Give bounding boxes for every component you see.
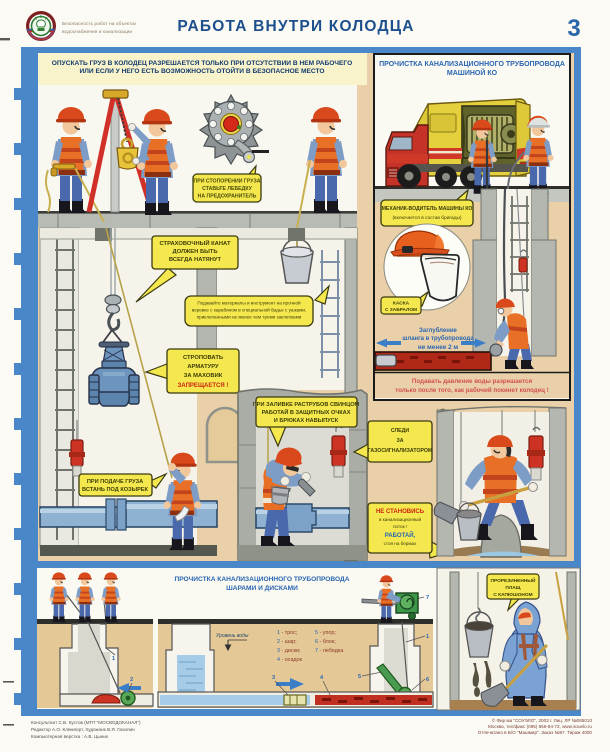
svg-text:1: 1 xyxy=(112,656,115,662)
svg-text:С ЗАБРАЛОМ: С ЗАБРАЛОМ xyxy=(385,307,417,313)
svg-text:АРМАТУРУ: АРМАТУРУ xyxy=(187,364,219,370)
svg-text:ПРОЧИСТКА КАНАЛИЗАЦИОННОГО ТРУ: ПРОЧИСТКА КАНАЛИЗАЦИОННОГО ТРУБОПРОВОДА xyxy=(175,576,350,583)
svg-text:Отпечатано в Б/О "Машмир". Зак: Отпечатано в Б/О "Машмир". Заказ №97. Ти… xyxy=(478,730,593,735)
svg-text:только после того, как рабочий: только после того, как рабочий покинет к… xyxy=(395,387,549,394)
svg-text:ЗА МАХОВИК: ЗА МАХОВИК xyxy=(184,373,223,379)
svg-text:СТРАХОВОЧНЫЙ КАНАТ: СТРАХОВОЧНЫЙ КАНАТ xyxy=(160,239,231,247)
svg-text:РАБОТАЙ,: РАБОТАЙ, xyxy=(385,531,416,539)
svg-text:ПРОЧИСТКА КАНАЛИЗАЦИОННОГО ТРУ: ПРОЧИСТКА КАНАЛИЗАЦИОННОГО ТРУБОПРОВОДА xyxy=(379,61,565,68)
svg-text:ВСТАНЬ ПОД КОЗЫРЕК: ВСТАНЬ ПОД КОЗЫРЕК xyxy=(82,487,148,493)
svg-text:5: 5 xyxy=(358,674,361,680)
svg-text:7 - лебедка: 7 - лебедка xyxy=(315,648,343,654)
svg-text:Консультант С.В. Кустов (МГП ": Консультант С.В. Кустов (МГП "МОСВОДОКАН… xyxy=(31,720,141,725)
svg-text:НА ПРЕДОХРАНИТЕЛЬ: НА ПРЕДОХРАНИТЕЛЬ xyxy=(198,194,257,200)
svg-text:1: 1 xyxy=(426,634,429,640)
svg-text:ПРИ ЗАЛИВКЕ РАСТРУБОВ СВИНЦОМ: ПРИ ЗАЛИВКЕ РАСТРУБОВ СВИНЦОМ xyxy=(253,402,360,408)
svg-text:ПЛАЩ: ПЛАЩ xyxy=(505,585,520,591)
svg-text:водоснабжения и канализации: водоснабжения и канализации xyxy=(62,29,132,35)
svg-text:3: 3 xyxy=(272,675,275,681)
svg-text:Редактор А.О. Клемперт, Художн: Редактор А.О. Клемперт, Художник В.Я. Га… xyxy=(31,727,135,732)
svg-text:СТРОПОВАТЬ: СТРОПОВАТЬ xyxy=(183,355,223,361)
svg-text:СЛЕДИ: СЛЕДИ xyxy=(391,428,409,434)
svg-text:Подавайте материалы и инструме: Подавайте материалы и инструмент на проч… xyxy=(197,300,301,306)
svg-text:ДОЛЖЕН БЫТЬ: ДОЛЖЕН БЫТЬ xyxy=(172,249,217,255)
svg-text:Уровень воды: Уровень воды xyxy=(216,633,249,639)
svg-text:ЗА: ЗА xyxy=(397,438,404,444)
svg-text:ПРИ СТОПОРЕНИИ ГРУЗА: ПРИ СТОПОРЕНИИ ГРУЗА xyxy=(194,179,261,185)
svg-text:Москва, тел/факс (095) 656-94-: Москва, тел/факс (095) 656-94-72, www.so… xyxy=(488,724,592,729)
svg-text:Подавать давление воды разреша: Подавать давление воды разрешается xyxy=(412,378,533,385)
svg-text:МЕХАНИК-ВОДИТЕЛЬ МАШИНЫ КО: МЕХАНИК-ВОДИТЕЛЬ МАШИНЫ КО xyxy=(382,206,473,212)
svg-text:лоток !: лоток ! xyxy=(393,524,407,529)
svg-text:(включается в состав бригады): (включается в состав бригады) xyxy=(392,215,461,221)
svg-text:ОПУСКАТЬ ГРУЗ В КОЛОДЕЦ РАЗРЕШ: ОПУСКАТЬ ГРУЗ В КОЛОДЕЦ РАЗРЕШАЕТСЯ ТОЛЬ… xyxy=(52,60,352,67)
svg-text:в канализационный: в канализационный xyxy=(379,516,422,522)
svg-text:ШАРАМИ И ДИСКАМИ: ШАРАМИ И ДИСКАМИ xyxy=(226,585,298,592)
svg-text:3: 3 xyxy=(567,15,580,42)
svg-text:ИЛИ ЕСЛИ У НЕГО ЕСТЬ ВОЗМОЖНОС: ИЛИ ЕСЛИ У НЕГО ЕСТЬ ВОЗМОЖНОСТЬ ОТОЙТИ … xyxy=(80,66,325,75)
svg-text:веревке с карабином в специаль: веревке с карабином в специальной бадье … xyxy=(192,307,306,313)
svg-text:шланга в трубопровода: шланга в трубопровода xyxy=(402,335,474,342)
svg-text:Компьютерная верстка : А.В. Цы: Компьютерная верстка : А.В. Цыних xyxy=(31,734,109,739)
svg-text:РАБОТА ВНУТРИ КОЛОДЦА: РАБОТА ВНУТРИ КОЛОДЦА xyxy=(177,18,414,35)
svg-text:6 - блок;: 6 - блок; xyxy=(315,639,336,645)
svg-text:не менее 2 м: не менее 2 м xyxy=(418,344,459,351)
svg-text:2: 2 xyxy=(130,677,133,683)
svg-text:И БРЮКАХ НАВЫПУСК: И БРЮКАХ НАВЫПУСК xyxy=(274,418,339,424)
svg-text:4 - осадок: 4 - осадок xyxy=(277,657,303,663)
svg-text:6: 6 xyxy=(426,677,429,683)
svg-text:7: 7 xyxy=(426,595,429,601)
svg-text:ПРИ ПОДАЧЕ ГРУЗА: ПРИ ПОДАЧЕ ГРУЗА xyxy=(87,479,143,485)
svg-text:СТАВЬТЕ ЛЕБЕДКУ: СТАВЬТЕ ЛЕБЕДКУ xyxy=(202,186,253,192)
svg-text:© Фир ма "СОУЭЛО", 2003 г. Ли: © Фир ма "СОУЭЛО", 2003 г. Лиц. ЛР №0650… xyxy=(492,717,593,723)
svg-text:приклепанными не менее чем тре: приклепанными не менее чем тремя заклепк… xyxy=(197,315,302,320)
svg-text:2 - шар;: 2 - шар; xyxy=(277,639,297,645)
svg-text:3 - диски;: 3 - диски; xyxy=(277,648,301,654)
svg-text:ГАЗОСИГНАЛИЗАТОРОМ: ГАЗОСИГНАЛИЗАТОРОМ xyxy=(368,448,432,454)
svg-text:ВСЕГДА НАТЯНУТ: ВСЕГДА НАТЯНУТ xyxy=(169,257,222,263)
svg-text:Заглубление: Заглубление xyxy=(419,327,457,334)
svg-text:1 - трос;: 1 - трос; xyxy=(277,630,298,636)
svg-text:МАШИНОЙ КО: МАШИНОЙ КО xyxy=(447,68,498,77)
svg-text:КАСКА: КАСКА xyxy=(393,301,410,307)
svg-text:5 - упор;: 5 - упор; xyxy=(315,630,336,636)
svg-text:РАБОТАЙ В ЗАЩИТНЫХ ОЧКАХ: РАБОТАЙ В ЗАЩИТНЫХ ОЧКАХ xyxy=(262,408,351,416)
svg-text:НЕ СТАНОВИСЬ: НЕ СТАНОВИСЬ xyxy=(376,509,425,515)
svg-text:ЗАПРЕЩАЕТСЯ !: ЗАПРЕЩАЕТСЯ ! xyxy=(178,383,229,389)
svg-text:Безопасность работ на объектах: Безопасность работ на объектах xyxy=(62,21,137,27)
svg-text:С КАПЮШОНОМ: С КАПЮШОНОМ xyxy=(493,592,532,598)
svg-text:стоя на бермах: стоя на бермах xyxy=(384,541,417,546)
